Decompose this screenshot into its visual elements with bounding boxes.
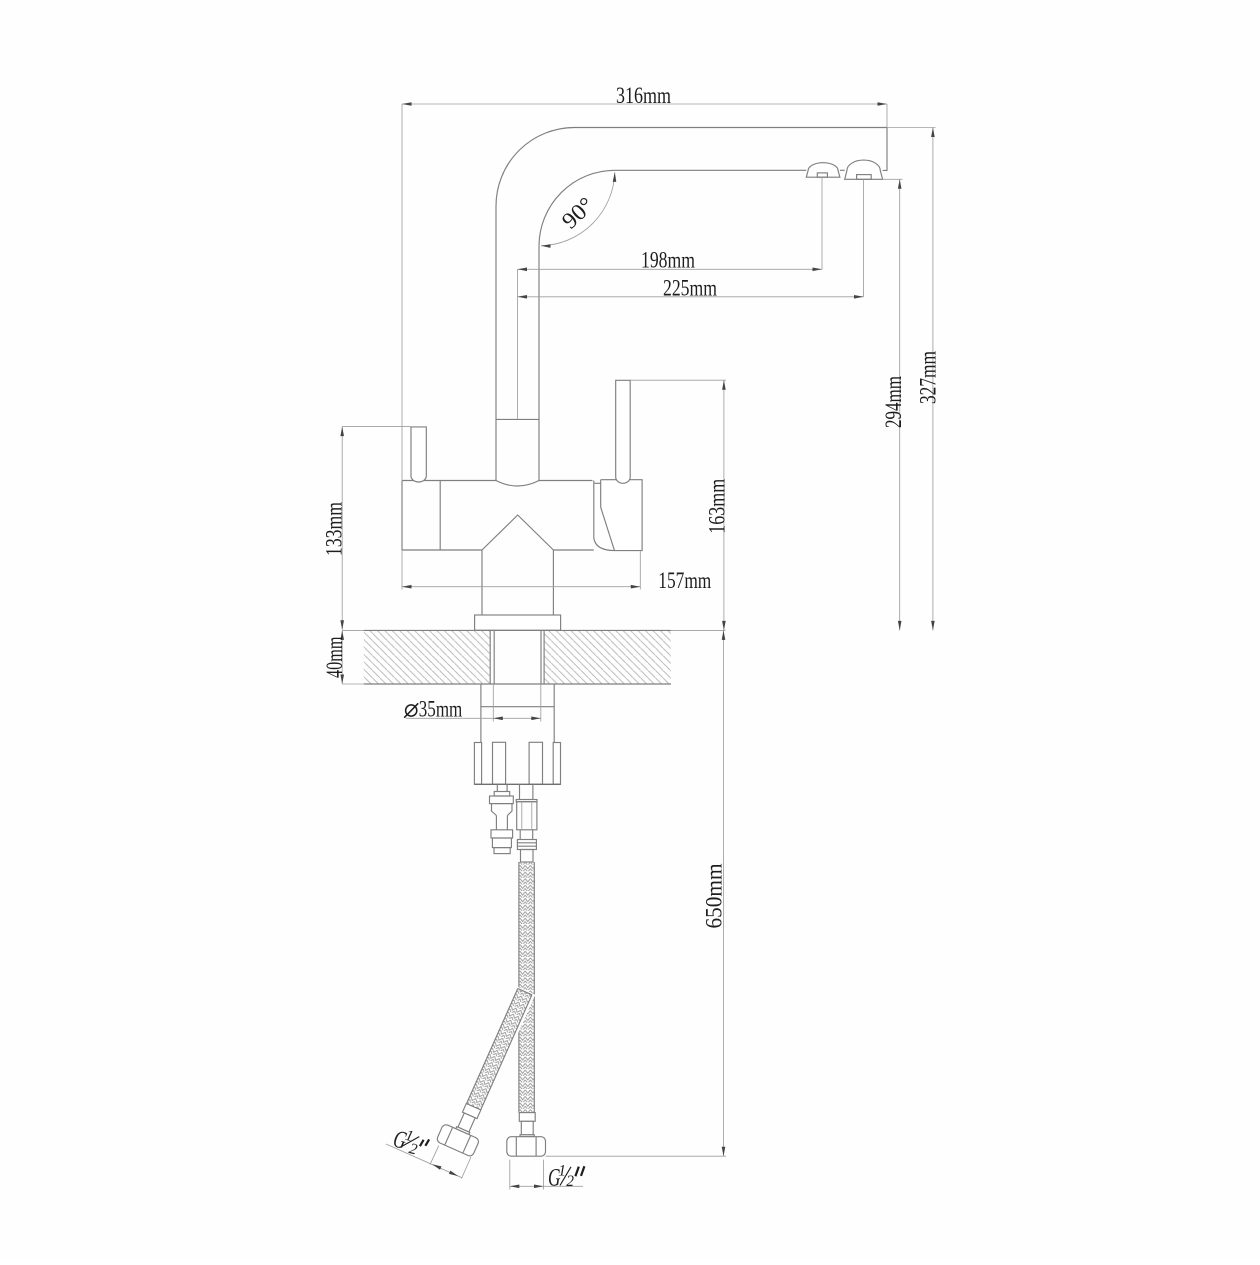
svg-text:133mm: 133mm: [322, 502, 348, 556]
svg-text:327mm: 327mm: [916, 351, 942, 404]
svg-text:163mm: 163mm: [705, 479, 731, 534]
svg-text:40mm: 40mm: [322, 637, 348, 679]
svg-text:225mm: 225mm: [663, 276, 717, 302]
svg-text:316mm: 316mm: [616, 83, 671, 109]
svg-text:157mm: 157mm: [658, 568, 711, 594]
svg-text:650mm: 650mm: [702, 864, 728, 929]
svg-text:35mm: 35mm: [419, 697, 463, 723]
svg-text:294mm: 294mm: [881, 376, 907, 428]
svg-text:2: 2: [566, 1173, 574, 1190]
svg-text:198mm: 198mm: [641, 248, 695, 274]
